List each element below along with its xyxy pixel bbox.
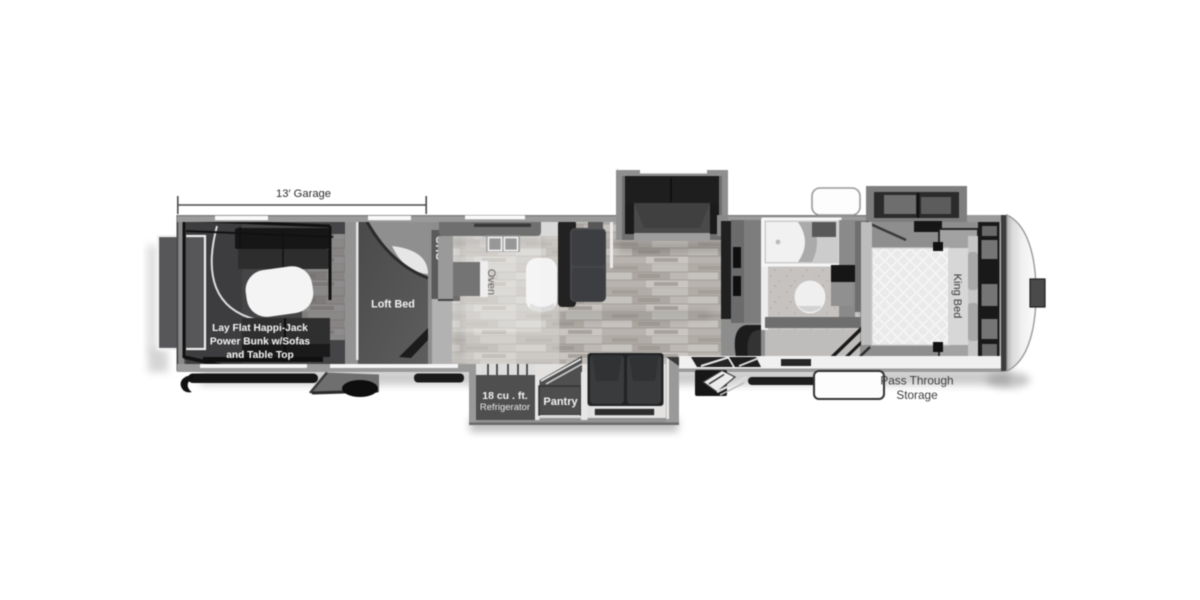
svg-text:Pantry: Pantry (543, 396, 578, 408)
svg-text:King Bed: King Bed (951, 274, 963, 319)
svg-text:Pass Through: Pass Through (880, 374, 953, 388)
svg-text:Storage: Storage (896, 388, 938, 402)
svg-text:and Table Top: and Table Top (226, 350, 294, 361)
svg-text:13′ Garage: 13′ Garage (276, 188, 331, 200)
svg-text:Refrigerator: Refrigerator (480, 402, 530, 413)
svg-text:Loft Bed: Loft Bed (371, 299, 415, 311)
svg-text:Power Bunk w/Sofas: Power Bunk w/Sofas (210, 337, 311, 348)
svg-text:18 cu . ft.: 18 cu . ft. (482, 390, 528, 402)
svg-text:Lay Flat Happi-Jack: Lay Flat Happi-Jack (212, 323, 308, 334)
